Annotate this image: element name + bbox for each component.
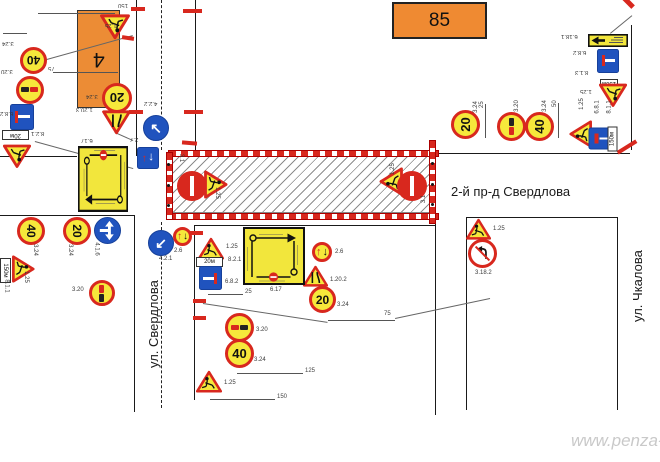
- sign-code-label: 2.6: [335, 249, 343, 255]
- leader-line: [395, 298, 490, 319]
- dimension-label: 125: [305, 368, 315, 374]
- road-sign-3.24: 20: [102, 83, 132, 113]
- leader-line: [610, 15, 633, 34]
- sign-code-label: 8.1.1: [4, 279, 10, 292]
- signal-lamp-dot: [431, 162, 434, 165]
- no-entry-bar: [190, 176, 195, 196]
- road-sign-3.20: [89, 280, 115, 306]
- road-sign-6.17: [78, 146, 128, 212]
- road-sign-6.8.2: [597, 49, 619, 73]
- traffic-scheme-canvas: 4 85 2-й пр-д Свердлова ул. Свердлова ул…: [0, 0, 660, 462]
- sign-code-label: 3.18.2: [475, 270, 492, 276]
- barrier-tick: [193, 299, 206, 303]
- dimension-line: [53, 72, 118, 73]
- road-sign-2.7: ↑↓: [137, 147, 159, 169]
- sign-code-label: 6.8.1: [595, 100, 601, 113]
- dimension-label: 75: [384, 311, 391, 317]
- sign-code-label: 6.17: [270, 287, 282, 293]
- road-sign-4.2.1: ↙: [148, 230, 174, 256]
- road-sign-3.1: [177, 171, 207, 201]
- sign-code-label: 8.2.1: [31, 130, 44, 136]
- sign-code-label: 3.24: [337, 302, 349, 308]
- street-edge-line: [0, 215, 135, 216]
- sign-code-label: 6.17: [81, 137, 93, 143]
- car-black-icon: [509, 118, 514, 126]
- sign-code-label: 1.20.2: [330, 277, 347, 283]
- street-edge-line: [136, 0, 137, 156]
- street-label-ul-chkalova: ул. Чкалова: [630, 250, 645, 322]
- road-sign-3.24: 20: [63, 217, 91, 245]
- street-label-ul-sverdlova: ул. Свердлова: [146, 280, 161, 368]
- road-sign-3.24: 40: [17, 217, 45, 245]
- dimension-label: 25: [479, 101, 485, 108]
- car-black-icon: [100, 294, 105, 302]
- sign-code-label: 1.25: [579, 98, 585, 110]
- object-box-85: 85: [392, 2, 487, 39]
- road-sign-1.20.2: [303, 265, 328, 287]
- street-edge-line: [195, 0, 196, 152]
- dimension-label: 150: [118, 2, 128, 8]
- road-sign-3.18.2: [468, 239, 497, 268]
- street-edge-line: [195, 225, 436, 226]
- road-sign-2.6: ↑↓: [312, 242, 332, 262]
- street-edge-line: [631, 25, 632, 150]
- sign-code-label: 3.24: [67, 244, 73, 256]
- dimension-line: [237, 373, 303, 374]
- road-sign-3.24: 40: [525, 112, 554, 141]
- dimension-line: [485, 104, 486, 138]
- road-sign-4.1.6: [94, 217, 121, 244]
- sign-code-label: 4.2.2: [144, 100, 157, 106]
- dimension-line: [328, 320, 395, 321]
- sign-code-label: 2.7: [130, 136, 138, 142]
- sign-code-label: 3.20: [256, 327, 268, 333]
- street-edge-line: [194, 225, 195, 400]
- sign-code-label: 1.25: [105, 22, 117, 28]
- sign-code-label: 6.8.2: [0, 110, 13, 116]
- signal-lamp-dot: [167, 184, 170, 187]
- sign-code-label: 1.25: [23, 271, 29, 283]
- car-red-icon: [509, 127, 514, 135]
- dimension-line: [210, 399, 275, 400]
- street-edge-line: [466, 217, 467, 410]
- signal-lamp-dot: [431, 183, 434, 186]
- sign-code-label: 6.8.2: [225, 279, 238, 285]
- dimension-label: 75: [48, 65, 55, 71]
- dimension-line: [208, 294, 243, 295]
- road-sign-3.20: [16, 76, 44, 104]
- sign-code-label: 3.24: [32, 244, 38, 256]
- car-red-icon: [100, 285, 105, 293]
- dimension-line: [3, 33, 27, 34]
- sign-code-label: 6.18.1: [561, 33, 578, 39]
- sign-code-label: 1.25: [214, 187, 220, 199]
- road-sign-3.24: 20: [451, 110, 480, 139]
- car-black-icon: [240, 325, 248, 330]
- sign-code-label: 3.20: [72, 287, 84, 293]
- road-sign-3.20: [225, 313, 254, 342]
- street-edge-line: [617, 217, 618, 410]
- sign-code-label: 6.8.2: [573, 49, 586, 55]
- sign-code-label: 2.6: [174, 248, 182, 254]
- signal-lamp-dot: [167, 204, 170, 207]
- barrier-tick: [183, 9, 202, 13]
- barrier-fence: [168, 150, 439, 157]
- dimension-label: 50: [552, 100, 558, 107]
- barrier-tick: [184, 110, 203, 114]
- sign-code-label: 1.25: [493, 226, 505, 232]
- watermark-text: www.penza-: [571, 431, 660, 451]
- sign-code-label: 3.24: [86, 93, 98, 99]
- dimension-label: 25: [245, 289, 252, 295]
- sign-code-label: 1.25: [226, 244, 238, 250]
- street-edge-line: [433, 153, 630, 154]
- building-4-number: 4: [93, 47, 105, 71]
- road-sign-2.6: ↑↓: [173, 227, 192, 246]
- road-sign-6.18.1: [588, 34, 628, 47]
- sign-code-label: 1.25: [580, 88, 592, 94]
- signal-lamp-dot: [167, 163, 170, 166]
- road-sign-3.20: [497, 112, 526, 141]
- barrier-tick: [622, 0, 635, 9]
- road-sign-4.2.2: ↖: [143, 115, 169, 141]
- sign-code-label: 8.1.3: [575, 69, 588, 75]
- sign-code-label: 3.1: [178, 154, 184, 162]
- road-sign-1.25: [196, 370, 222, 393]
- sign-code-label: 8.1.1: [607, 100, 613, 113]
- road-sign-6.8.2: [199, 266, 222, 290]
- barrier-fence: [168, 213, 439, 220]
- sign-code-label: 4.2.1: [159, 256, 172, 262]
- sign-code-label: 3.24: [2, 40, 14, 46]
- sign-code-label: 1.20.3: [76, 106, 93, 112]
- barrier-tick: [131, 7, 145, 11]
- sign-code-label: 1.25: [390, 163, 396, 175]
- road-sign-3.24: 20: [309, 286, 336, 313]
- barrier-tick: [182, 140, 197, 145]
- sign-code-label: 3.24: [542, 100, 548, 112]
- road-sign-8.1.1: 150м: [608, 127, 618, 152]
- barrier-fence: [429, 140, 436, 224]
- no-entry-bar: [410, 176, 415, 196]
- car-red-icon: [231, 325, 239, 330]
- sign-code-label: 3.24: [254, 357, 266, 363]
- sign-code-label: 8.2.1: [228, 257, 241, 263]
- sign-code-label: 4.1.6: [94, 242, 100, 255]
- car-red-icon: [31, 88, 39, 93]
- street-edge-line: [134, 215, 135, 412]
- sign-code-label: 3.20: [1, 68, 13, 74]
- road-sign-works: [3, 144, 31, 169]
- road-sign-3.24: 40: [225, 339, 254, 368]
- road-sign-8.2.1: 20м: [2, 130, 29, 140]
- signal-lamp-dot: [431, 203, 434, 206]
- dimension-label: 150: [277, 394, 287, 400]
- road-sign-1.25: [466, 218, 491, 240]
- sign-code-label: 3.20: [514, 100, 520, 112]
- road-sign-1.25: [599, 83, 627, 108]
- sign-code-label: 3.1: [421, 195, 427, 203]
- road-sign-3.24: 40: [20, 47, 47, 74]
- barrier-tick: [193, 316, 206, 320]
- road-sign-1.20.3: [102, 110, 131, 135]
- road-sign-6.8.2: [10, 104, 34, 130]
- sign-code-label: 3.24: [473, 101, 479, 113]
- road-sign-6.17: [243, 227, 305, 285]
- sign-code-label: 1.25: [224, 380, 236, 386]
- car-black-icon: [22, 88, 30, 93]
- dimension-line: [558, 103, 559, 138]
- street-label-2nd-proezd-sverdlova: 2-й пр-д Свердлова: [451, 184, 570, 199]
